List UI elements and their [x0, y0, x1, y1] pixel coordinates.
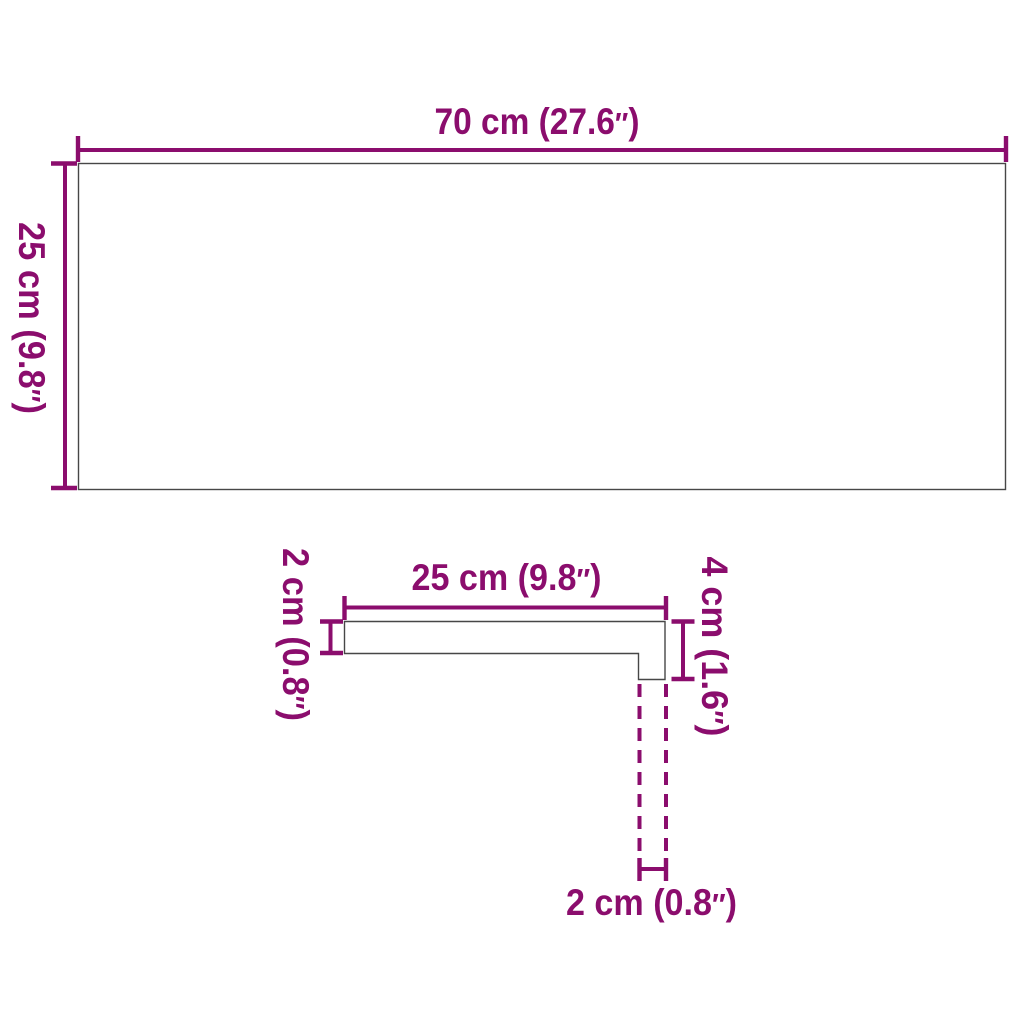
svg-text:70 cm (27.6″): 70 cm (27.6″): [435, 101, 640, 142]
svg-text:2 cm (0.8″): 2 cm (0.8″): [275, 548, 316, 721]
svg-text:4 cm (1.6″): 4 cm (1.6″): [694, 557, 735, 737]
svg-text:25 cm (9.8″): 25 cm (9.8″): [412, 557, 602, 598]
svg-text:25 cm (9.8″): 25 cm (9.8″): [11, 222, 52, 414]
svg-text:2 cm (0.8″): 2 cm (0.8″): [566, 882, 737, 923]
